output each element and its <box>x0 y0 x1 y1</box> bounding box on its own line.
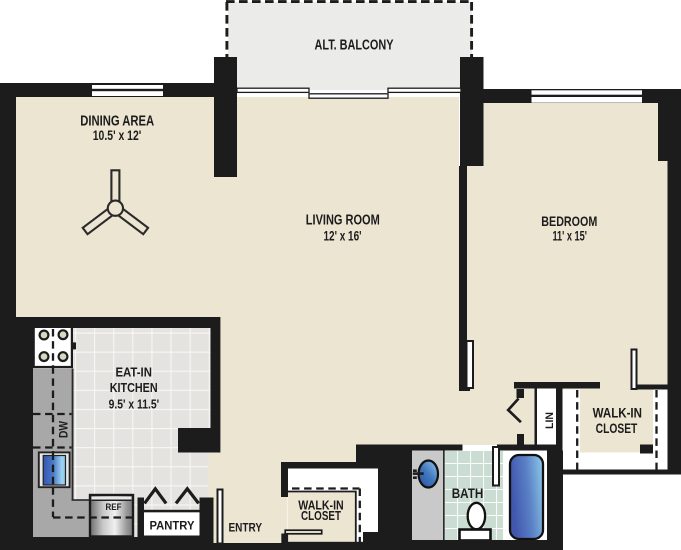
svg-text:CLOSET: CLOSET <box>596 420 638 436</box>
svg-text:11' x 15': 11' x 15' <box>552 229 587 244</box>
svg-text:CLOSET: CLOSET <box>301 508 341 523</box>
svg-text:EAT-IN: EAT-IN <box>115 365 152 380</box>
svg-text:10.5' x 12': 10.5' x 12' <box>93 128 142 143</box>
svg-text:BATH: BATH <box>452 486 484 501</box>
svg-text:BEDROOM: BEDROOM <box>541 213 597 229</box>
svg-text:LIN: LIN <box>544 412 556 429</box>
svg-text:DW: DW <box>56 420 70 438</box>
svg-text:WALK-IN: WALK-IN <box>593 405 642 421</box>
svg-text:PANTRY: PANTRY <box>150 519 195 533</box>
svg-text:REF: REF <box>106 502 122 513</box>
svg-text:9.5' x 11.5': 9.5' x 11.5' <box>109 396 160 411</box>
svg-text:12' x 16': 12' x 16' <box>324 229 362 244</box>
svg-text:KITCHEN: KITCHEN <box>110 380 158 395</box>
svg-text:ENTRY: ENTRY <box>229 520 263 534</box>
svg-text:LIVING ROOM: LIVING ROOM <box>306 212 380 228</box>
svg-text:ALT. BALCONY: ALT. BALCONY <box>315 37 394 53</box>
